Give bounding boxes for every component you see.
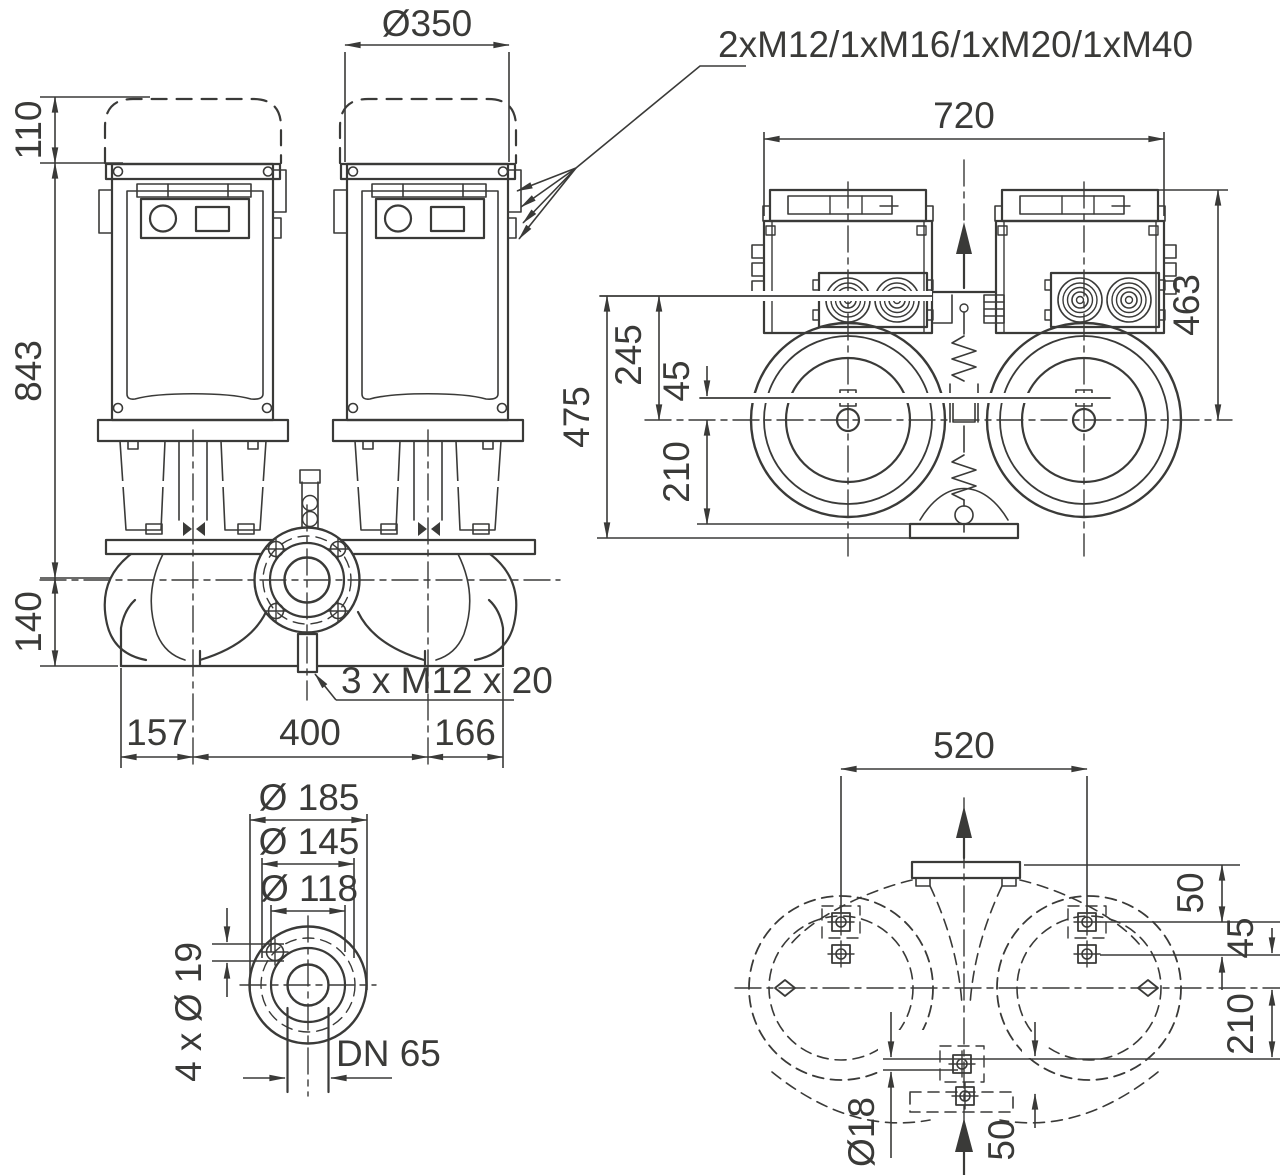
dim-base-right: 166	[434, 712, 496, 753]
drawing-svg: Ø350 110 843 140 157 400 166 3 x M12 x 2…	[0, 0, 1280, 1175]
dim-base-left: 157	[126, 712, 188, 753]
dim-foot-offset: 50	[981, 1119, 1022, 1160]
note-cable-glands: 2xM12/1xM16/1xM20/1xM40	[718, 24, 1193, 65]
dim-bolt-row-gap: 45	[1220, 917, 1261, 958]
footprint-view: 520 50 45 210 Ø18 50	[735, 725, 1280, 1175]
dim-gland-to-axis: 45	[656, 360, 697, 401]
note-flange-screws: 3 x M12 x 20	[341, 660, 553, 701]
flange-detail-view: Ø 185 Ø 145 Ø 118 4 x Ø 19 DN 65	[168, 777, 441, 1096]
dim-flange-outer: Ø 185	[259, 777, 360, 818]
footprint-flange	[912, 862, 1020, 886]
footprint-bolts	[775, 906, 1158, 1112]
dim-axis-to-foot: 210	[656, 441, 697, 503]
dim-bolt-spacing: 520	[933, 725, 995, 766]
dim-front-to-axis: 245	[608, 324, 649, 386]
dim-motor-clearance-dia: Ø350	[382, 3, 473, 44]
dim-clearance-height: 110	[8, 101, 49, 160]
front-right-motor	[333, 99, 535, 554]
footprint-centerlines	[735, 798, 1280, 1175]
dimension-drawing: Ø350 110 843 140 157 400 166 3 x M12 x 2…	[0, 0, 1280, 1175]
top-view: 720 463 475 245 45 210	[556, 95, 1232, 556]
top-center-housing	[910, 222, 1018, 538]
footprint-dimensions: 520 50 45 210 Ø18 50	[841, 725, 1280, 1167]
annotation-mask	[878, 1030, 938, 1084]
dim-bolt-circle: Ø 145	[259, 821, 360, 862]
dim-overall-width: 475	[556, 386, 597, 448]
flange-dimensions: Ø 185 Ø 145 Ø 118 4 x Ø 19 DN 65	[168, 777, 441, 1082]
dim-axis-to-base: 140	[8, 591, 49, 653]
dim-edge-to-bolt: 50	[1170, 872, 1211, 913]
dim-axis-to-hole: 210	[1220, 993, 1261, 1055]
flow-arrow-up	[956, 222, 972, 254]
top-left-terminal-box	[752, 190, 933, 333]
front-view: Ø350 110 843 140 157 400 166 3 x M12 x 2…	[8, 3, 1193, 768]
top-right-terminal-box	[995, 190, 1176, 333]
dim-nominal-bore: DN 65	[336, 1033, 441, 1074]
dim-depth-to-axis: 463	[1166, 274, 1207, 336]
dim-bolt-holes: 4 x Ø 19	[168, 942, 209, 1082]
dim-hole-diameter: Ø18	[841, 1097, 882, 1167]
dim-raised-face: Ø 118	[260, 868, 358, 909]
dim-overall-length: 720	[933, 95, 995, 136]
dim-pump-spacing: 400	[279, 712, 341, 753]
front-left-motor	[98, 99, 300, 554]
dim-height-axis-top: 843	[8, 340, 49, 402]
cable-gland-leader: 2xM12/1xM16/1xM20/1xM40	[517, 24, 1193, 239]
